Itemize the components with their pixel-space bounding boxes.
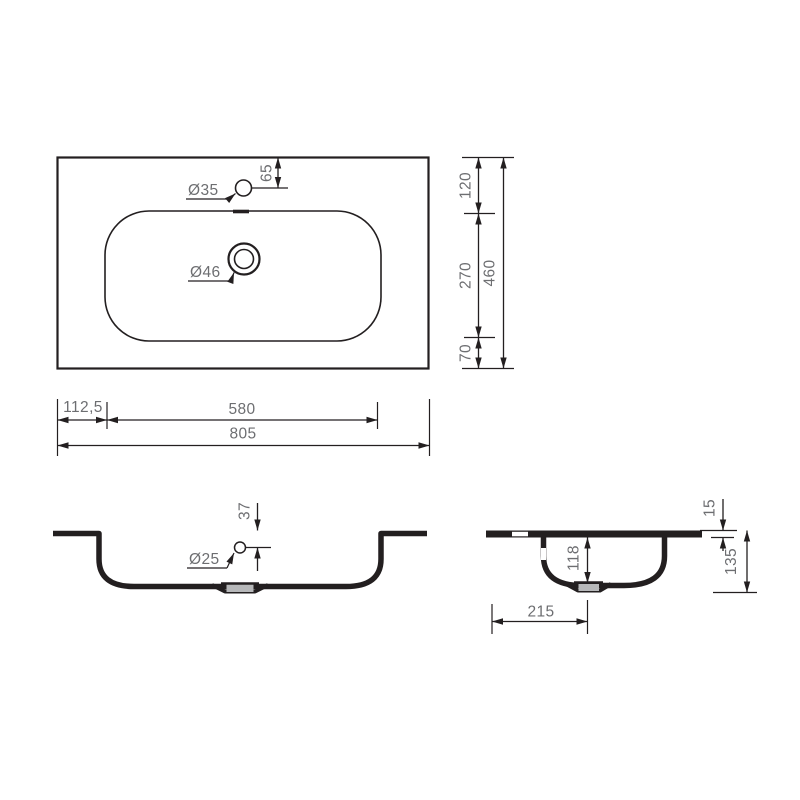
plan-view-outline bbox=[58, 158, 429, 369]
plan-bowl-outline bbox=[105, 211, 381, 341]
dim-580-text: 580 bbox=[228, 401, 255, 418]
plan-drain-leader-arrow bbox=[231, 273, 234, 282]
dim-65-text: 65 bbox=[259, 164, 276, 182]
dim-112-5-text: 112,5 bbox=[63, 399, 103, 416]
dim-135-text: 135 bbox=[723, 548, 740, 575]
dim-215-text: 215 bbox=[527, 604, 554, 621]
front-overflow-label: Ø25 bbox=[189, 551, 220, 568]
plan-drain-hole-label: Ø46 bbox=[190, 264, 221, 281]
side-drain-plug bbox=[579, 584, 600, 591]
dim-460-text: 460 bbox=[482, 259, 499, 286]
washbasin-drawing-canvas: Ø35 65 Ø46 120 270 70 460 bbox=[0, 0, 800, 800]
front-view: Ø25 37 bbox=[53, 502, 427, 592]
side-faucet-hole-section bbox=[512, 532, 528, 537]
plan-drain-hole-outer bbox=[229, 244, 260, 275]
side-bowl-profile bbox=[544, 537, 665, 586]
dim-270-text: 270 bbox=[458, 262, 475, 289]
front-overflow-hole bbox=[235, 542, 246, 553]
plan-horizontal-dimensions: 112,5 580 805 bbox=[58, 399, 430, 456]
dim-70-text: 70 bbox=[458, 344, 475, 362]
dim-37-text: 37 bbox=[237, 502, 254, 520]
side-overflow-slot-section bbox=[541, 548, 546, 560]
front-drain-plug bbox=[227, 585, 254, 593]
dim-120-text: 120 bbox=[458, 172, 475, 199]
plan-faucet-hole bbox=[236, 180, 252, 196]
dim-15-text: 15 bbox=[702, 499, 719, 517]
plan-faucet-leader-arrow bbox=[229, 194, 236, 200]
plan-view: Ø35 65 Ø46 bbox=[58, 158, 429, 369]
side-view: 118 15 135 215 bbox=[486, 499, 757, 634]
plan-faucet-hole-label: Ø35 bbox=[188, 182, 219, 199]
front-overflow-leader-arrow bbox=[227, 553, 234, 568]
technical-drawing-page: Ø35 65 Ø46 120 270 70 460 bbox=[0, 0, 800, 800]
dim-805-text: 805 bbox=[229, 426, 256, 443]
dim-118-text: 118 bbox=[566, 545, 583, 571]
plan-drain-hole-inner bbox=[235, 250, 254, 269]
plan-vertical-dimensions: 120 270 70 460 bbox=[458, 158, 515, 369]
